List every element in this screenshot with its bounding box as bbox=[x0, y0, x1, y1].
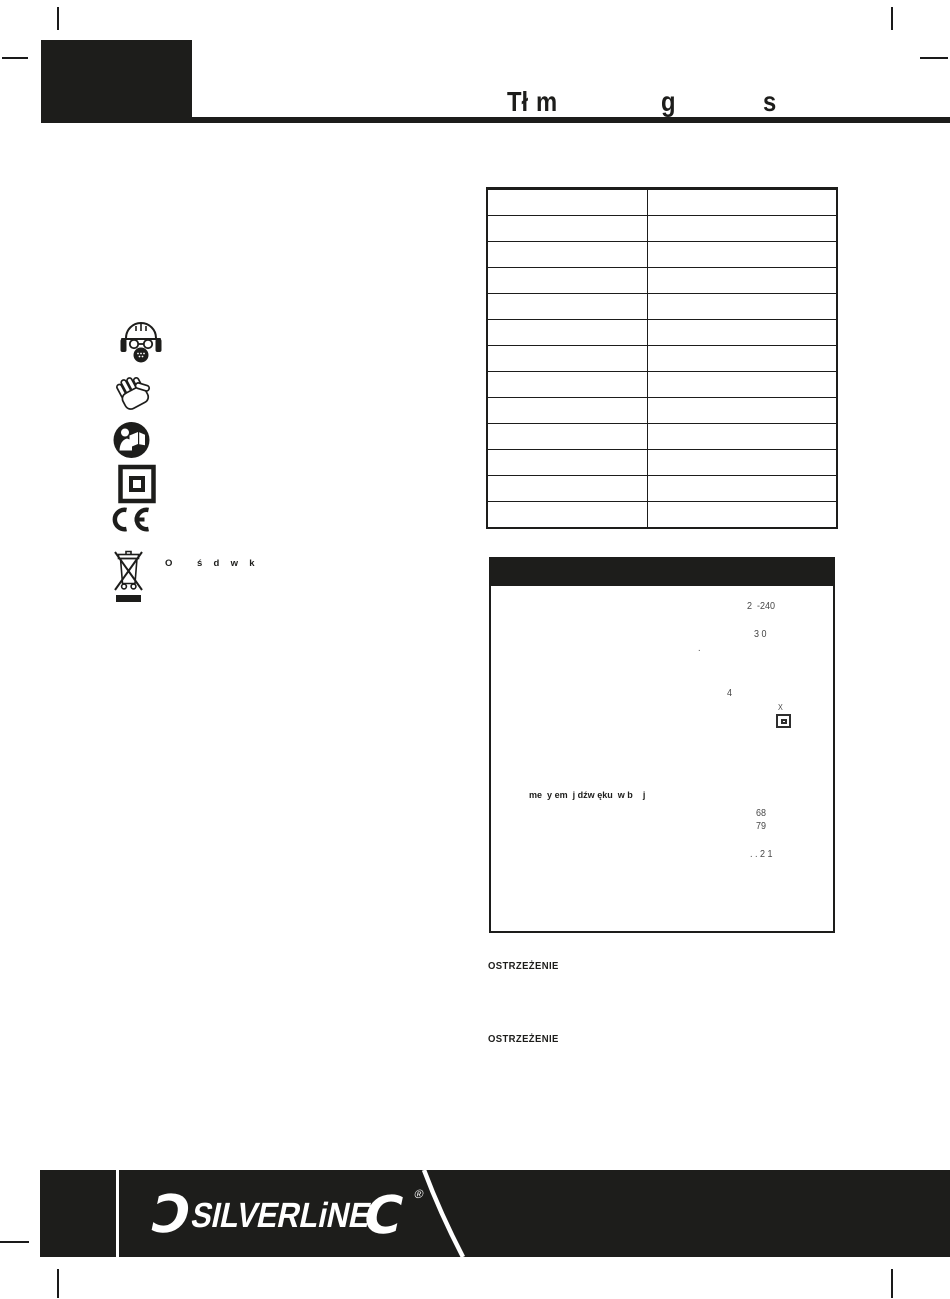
table-cell bbox=[648, 398, 836, 423]
table-row bbox=[488, 398, 836, 424]
table-row bbox=[488, 190, 836, 216]
double-insulated-small-icon bbox=[776, 714, 791, 728]
table-cell bbox=[488, 294, 648, 319]
table-cell bbox=[648, 268, 836, 293]
table-cell bbox=[648, 346, 836, 371]
table-cell bbox=[488, 398, 648, 423]
parts-table bbox=[486, 187, 838, 529]
table-cell bbox=[488, 190, 648, 215]
table-cell bbox=[648, 372, 836, 397]
table-cell bbox=[488, 320, 648, 345]
ce-mark-icon bbox=[111, 507, 151, 532]
table-row bbox=[488, 450, 836, 476]
table-cell bbox=[488, 372, 648, 397]
table-row bbox=[488, 320, 836, 346]
crop-mark-top-left-v bbox=[57, 7, 59, 30]
warning-label: OSTRZEŻENIE bbox=[488, 961, 559, 972]
table-cell bbox=[648, 450, 836, 475]
double-insulated-icon bbox=[118, 464, 156, 504]
page-title-fragment: Tł bbox=[507, 86, 528, 118]
environment-note-fragment: O bbox=[165, 558, 172, 569]
warning-label: OSTRZEŻENIE bbox=[488, 1034, 559, 1045]
crop-mark-bottom-right-v bbox=[891, 1269, 893, 1298]
table-cell bbox=[648, 424, 836, 449]
table-row bbox=[488, 346, 836, 372]
table-cell bbox=[648, 502, 836, 527]
spec-value-power: 3 0 bbox=[754, 629, 767, 640]
silverline-right-wrench-glyph: C bbox=[358, 1186, 409, 1243]
table-cell bbox=[488, 216, 648, 241]
spec-sound-label-fragment: me y em j dźw ęku w b j bbox=[529, 790, 645, 801]
table-cell bbox=[488, 242, 648, 267]
spec-value-voltage: 2 -240 bbox=[747, 601, 775, 612]
table-row bbox=[488, 216, 836, 242]
table-cell bbox=[488, 268, 648, 293]
crop-mark-top-left-h bbox=[2, 57, 28, 59]
table-row bbox=[488, 268, 836, 294]
table-cell bbox=[488, 502, 648, 527]
table-row bbox=[488, 476, 836, 502]
spec-value-class: 4 bbox=[727, 688, 732, 699]
manual-page: Tł m g s bbox=[0, 0, 950, 1299]
gloves-icon bbox=[113, 374, 158, 415]
table-row bbox=[488, 372, 836, 398]
table-cell bbox=[488, 346, 648, 371]
table-cell bbox=[648, 216, 836, 241]
ppe-icon bbox=[117, 318, 165, 364]
read-manual-icon bbox=[112, 421, 152, 459]
table-cell bbox=[648, 190, 836, 215]
table-cell bbox=[648, 320, 836, 345]
crop-mark-top-right-v bbox=[891, 7, 893, 30]
footer-left-box bbox=[40, 1170, 116, 1257]
environment-note-fragment: ś d w k bbox=[197, 558, 257, 569]
spec-box bbox=[489, 557, 835, 933]
spec-value-dot: . bbox=[698, 643, 701, 654]
silverline-wordmark: SILVERLiNE bbox=[188, 1196, 374, 1235]
spec-value-sound-power: 79 bbox=[756, 821, 766, 832]
spec-value-vibration: . . 2 1 bbox=[750, 849, 773, 860]
page-title-fragment: g bbox=[661, 86, 676, 118]
crop-mark-bottom-left-v bbox=[57, 1269, 59, 1298]
page-title-fragment: m bbox=[536, 86, 557, 118]
table-cell bbox=[488, 450, 648, 475]
spec-value-x: X bbox=[778, 703, 783, 712]
table-row bbox=[488, 242, 836, 268]
spec-value-sound-pressure: 68 bbox=[756, 808, 766, 819]
crop-mark-top-right-h bbox=[920, 57, 948, 59]
table-cell bbox=[648, 294, 836, 319]
crop-mark-bottom-left-h bbox=[0, 1241, 29, 1243]
table-cell bbox=[648, 242, 836, 267]
header-rule bbox=[41, 117, 950, 123]
table-cell bbox=[488, 476, 648, 501]
table-cell bbox=[488, 424, 648, 449]
table-row bbox=[488, 294, 836, 320]
table-cell bbox=[648, 476, 836, 501]
weee-bin-icon bbox=[113, 545, 144, 603]
table-row bbox=[488, 424, 836, 450]
header-logo-box bbox=[41, 40, 192, 123]
table-row bbox=[488, 502, 836, 527]
spec-box-header bbox=[491, 559, 833, 586]
registered-trademark-symbol: ® bbox=[413, 1187, 425, 1201]
page-title-fragment: s bbox=[763, 86, 776, 118]
silverline-logo: Ɔ SILVERLiNE C ® bbox=[145, 1183, 435, 1243]
